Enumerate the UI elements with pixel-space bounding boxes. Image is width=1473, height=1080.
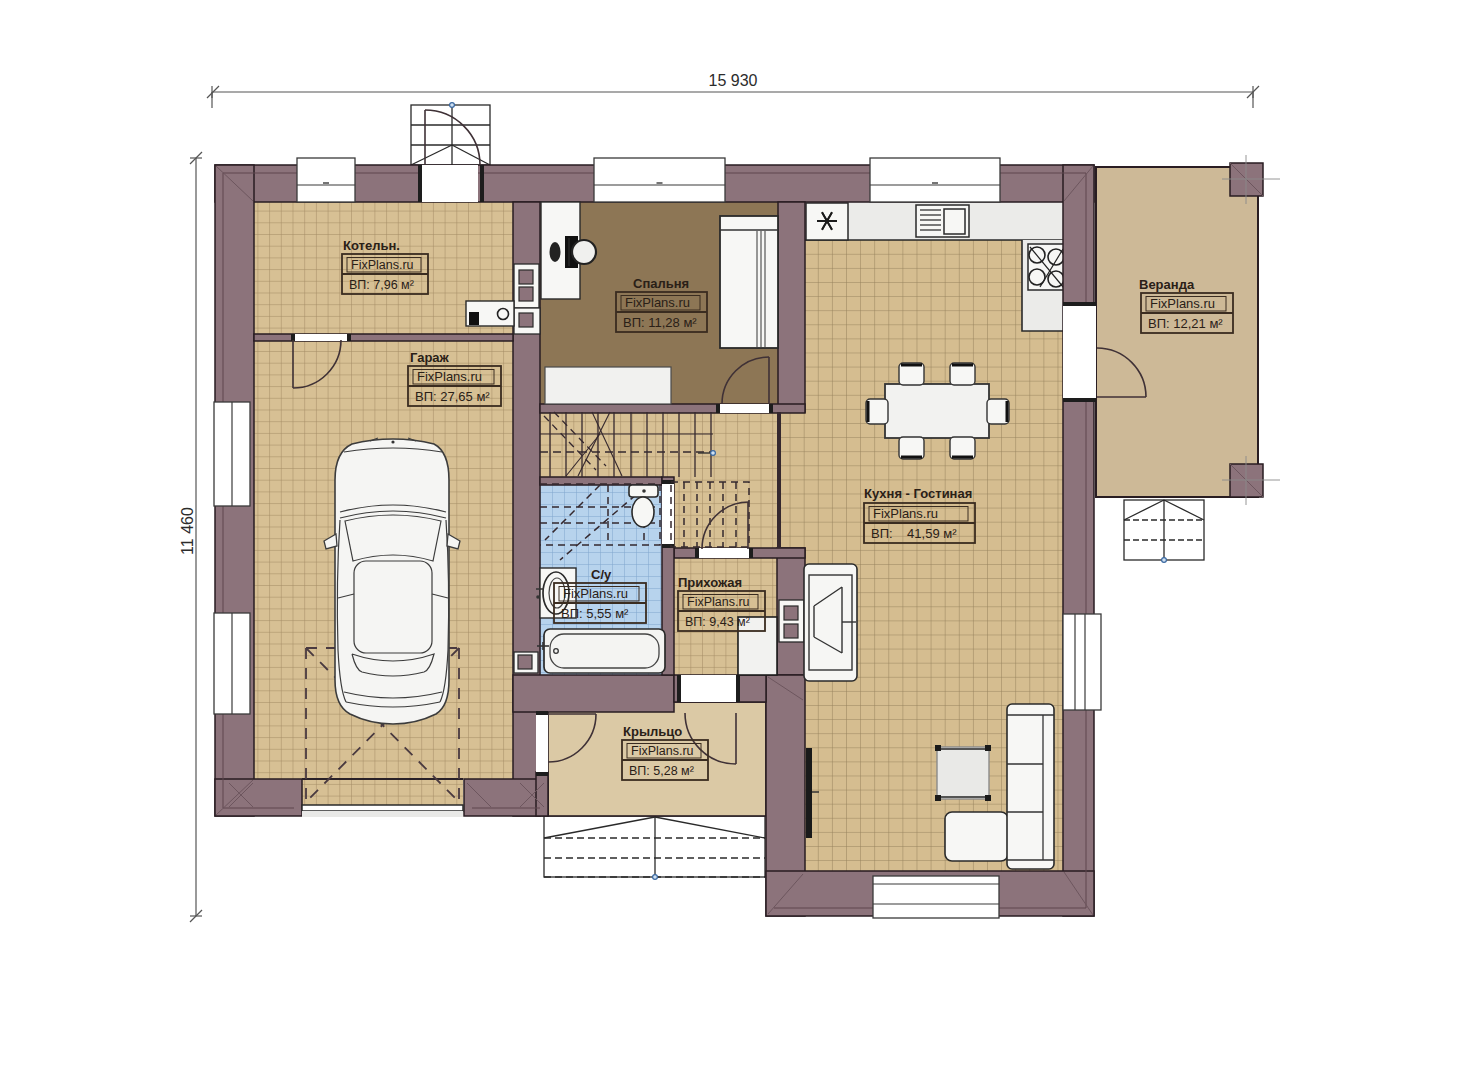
svg-text:FixPlans.ru: FixPlans.ru <box>625 295 690 310</box>
svg-text:11 460: 11 460 <box>179 507 196 555</box>
svg-text:Веранда: Веранда <box>1139 277 1195 292</box>
svg-text:ВП: 27,65 м²: ВП: 27,65 м² <box>415 389 490 404</box>
svg-text:ВП: 7,96 м²: ВП: 7,96 м² <box>349 278 414 292</box>
svg-text:FixPlans.ru: FixPlans.ru <box>687 595 750 609</box>
svg-text:FixPlans.ru: FixPlans.ru <box>631 744 694 758</box>
svg-text:FixPlans.ru: FixPlans.ru <box>351 258 414 272</box>
svg-text:ВП: 5,28 м²: ВП: 5,28 м² <box>629 764 694 778</box>
svg-text:ВП: 11,28 м²: ВП: 11,28 м² <box>623 315 697 330</box>
svg-text:ВП: 9,43 м²: ВП: 9,43 м² <box>685 615 750 629</box>
svg-text:Котельн.: Котельн. <box>343 238 400 253</box>
svg-text:ВП: 12,21 м²: ВП: 12,21 м² <box>1148 316 1223 331</box>
svg-text:FixPlans.ru: FixPlans.ru <box>417 369 482 384</box>
svg-text:15 930: 15 930 <box>709 72 758 89</box>
svg-text:FixPlans.ru: FixPlans.ru <box>873 506 938 521</box>
svg-text:ВП: 5,55 м²: ВП: 5,55 м² <box>561 606 629 621</box>
svg-text:Спальня: Спальня <box>633 276 689 291</box>
svg-text:ВП: 41,59 м²: ВП: 41,59 м² <box>871 526 957 541</box>
svg-text:Прихожая: Прихожая <box>678 575 742 590</box>
svg-text:FixPlans.ru: FixPlans.ru <box>1150 296 1215 311</box>
svg-text:FixPlans.ru: FixPlans.ru <box>563 586 628 601</box>
svg-text:Кухня - Гостиная: Кухня - Гостиная <box>864 486 972 501</box>
svg-text:Гараж: Гараж <box>410 350 450 365</box>
svg-text:Крыльцо: Крыльцо <box>623 724 682 739</box>
svg-text:С/у: С/у <box>591 567 612 582</box>
